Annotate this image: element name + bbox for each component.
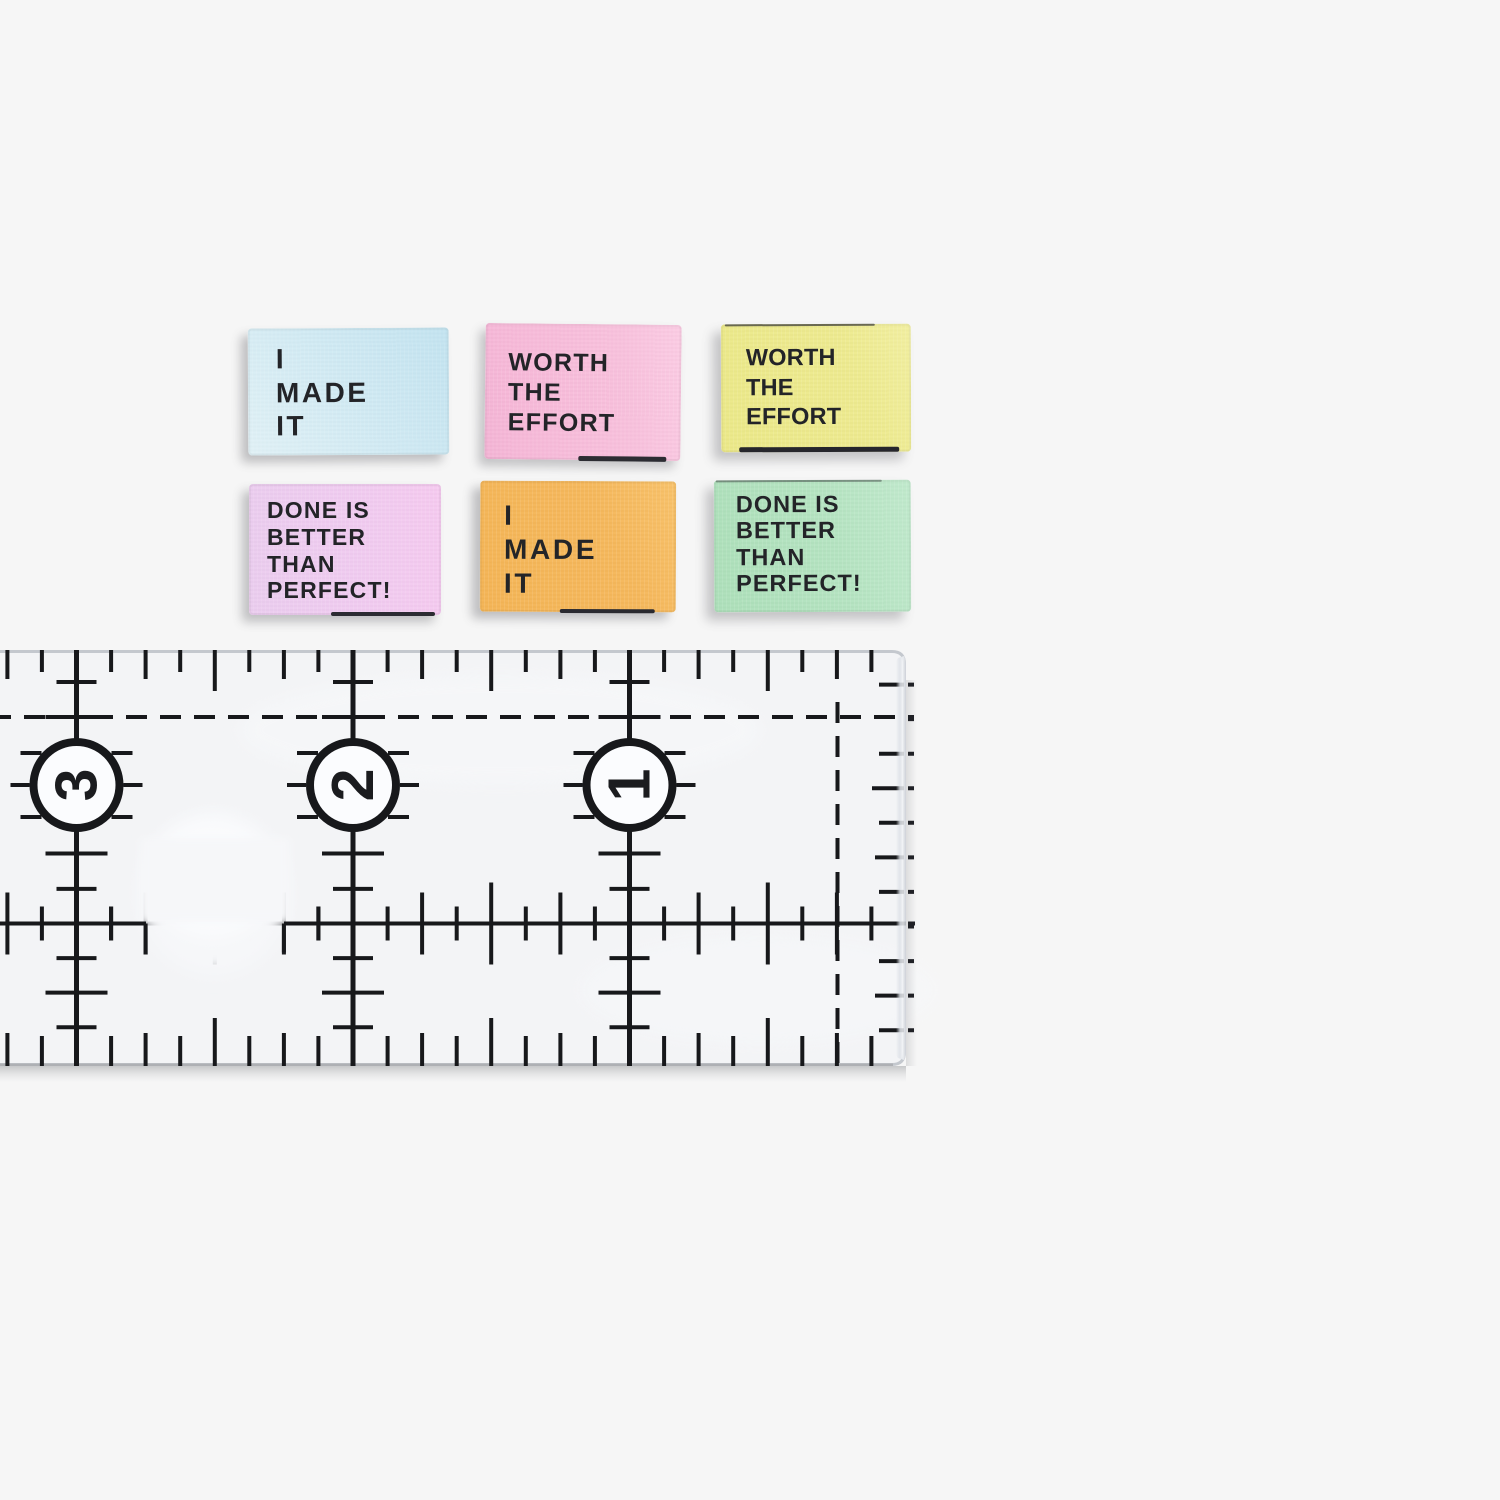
svg-text:3: 3 bbox=[44, 769, 110, 802]
svg-text:1: 1 bbox=[597, 769, 663, 802]
svg-text:2: 2 bbox=[320, 769, 386, 802]
